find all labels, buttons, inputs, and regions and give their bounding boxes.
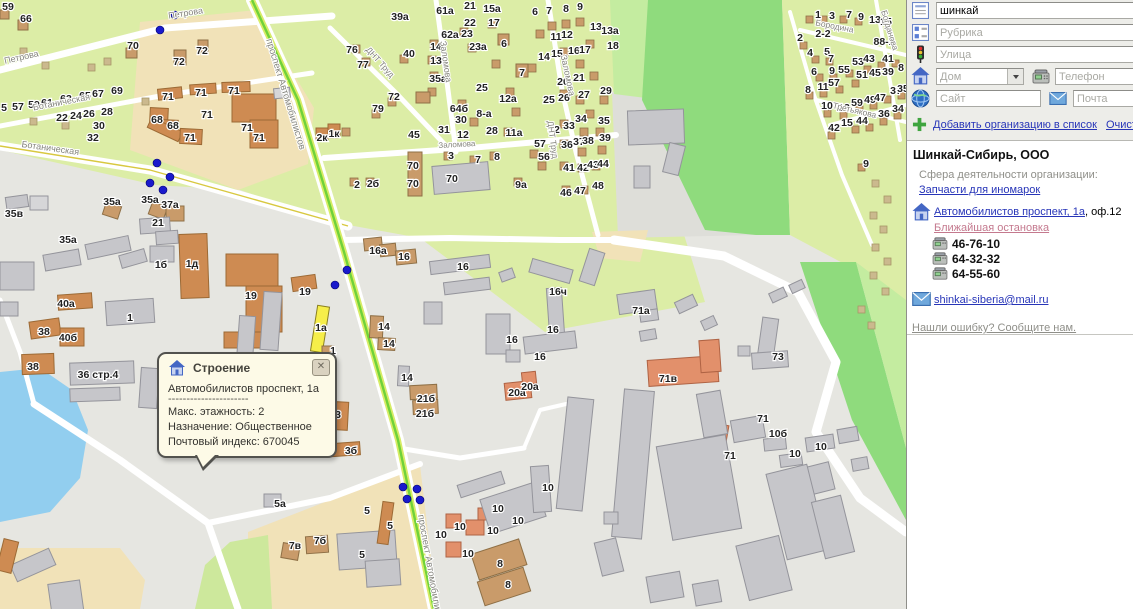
rubric-input[interactable] (936, 24, 1133, 41)
search-sidebar: Дом Добавить организацию в список Очисти… (906, 0, 1133, 609)
building-number-label: 9 (863, 158, 869, 170)
address-link[interactable]: Автомобилистов проспект, 1а (934, 206, 1085, 218)
address-office-suffix: , оф.12 (1085, 206, 1122, 218)
building-number-label: 71 (757, 413, 769, 425)
building-number-label: 35а (103, 196, 121, 208)
building-number-label: 21 (464, 0, 476, 12)
building-number-label: 10 (789, 448, 801, 460)
report-error-link[interactable]: Нашли ошибку? Сообщите нам. (912, 322, 1076, 334)
map-cottage (590, 72, 598, 80)
building-number-label: 30 (455, 114, 467, 126)
map-tree (858, 306, 865, 313)
building-number-label: 14 (383, 338, 395, 350)
building-number-label: 12а (499, 93, 517, 105)
building-number-label: 56 (538, 151, 550, 163)
site-input[interactable] (936, 90, 1041, 107)
popup-title: Строение (193, 361, 250, 375)
firm-icon (912, 2, 929, 22)
building-number-label: 39 (599, 132, 611, 144)
building-number-label: 48 (592, 180, 604, 192)
building-number-label: 13 (590, 21, 602, 33)
building-number-label: 5 (387, 520, 393, 532)
building-number-label: 59 (2, 1, 14, 13)
building-number-label: 2 (354, 179, 360, 191)
organization-card: Шинкай-Сибирь, ООО Сфера деятельности ор… (907, 140, 1133, 609)
building-number-label: 7в (289, 540, 302, 552)
building-number-label: 9 (577, 1, 583, 13)
building-number-label: 9а (515, 179, 527, 191)
map-cottage (578, 148, 586, 156)
building-number-label: 45 (408, 129, 420, 141)
building-number-label: 27 (578, 89, 590, 101)
building-number-label: 18 (607, 40, 619, 52)
building-number-label: 32 (87, 132, 99, 144)
building-number-label: 14 (401, 372, 413, 384)
map-canvas[interactable]: 5966705575961636567692224262830327171717… (0, 0, 906, 609)
map-tree (30, 118, 37, 125)
map-tree (870, 272, 877, 279)
building-number-label: 57 (828, 77, 840, 89)
map-building (466, 520, 484, 535)
building-number-label: 39а (391, 11, 409, 23)
building-number-label: 38 (27, 361, 39, 373)
building-number-label: 14 (538, 51, 550, 63)
building-number-label: 7б (314, 535, 327, 547)
traffic-light-icon (913, 45, 928, 66)
building-number-label: 5 (1, 102, 7, 114)
building-number-label: 71в (659, 373, 678, 385)
building-number-label: 2б (367, 178, 380, 190)
map-tree (42, 62, 49, 69)
phone-filter-icon (1032, 69, 1050, 87)
map-building (446, 542, 461, 557)
building-number-label: 33 (563, 120, 575, 132)
map-building (70, 387, 120, 402)
map-cottage (576, 60, 584, 68)
house-filter-icon (911, 67, 930, 88)
building-number-label: 17 (579, 44, 591, 56)
map-building (738, 346, 750, 356)
building-number-label: 34 (575, 113, 587, 125)
organization-title: Шинкай-Сибирь, ООО (913, 148, 1049, 162)
map-tree (880, 226, 887, 233)
building-number-label: 16 (506, 334, 518, 346)
map-cottage (852, 80, 859, 87)
building-number-label: 2 (797, 32, 803, 44)
popup-close-button[interactable]: ✕ (312, 359, 330, 376)
clear-list-link[interactable]: Очистить (1106, 119, 1133, 131)
building-number-label: 3 (448, 150, 454, 162)
building-number-label: 16ч (549, 286, 567, 298)
building-number-label: 23 (461, 28, 473, 40)
building-number-label: 47 (574, 185, 586, 197)
building-number-label: 68 (151, 114, 163, 126)
building-number-label: 35 (598, 115, 610, 127)
house-select-value: Дом (937, 71, 1007, 83)
map-building (416, 92, 430, 103)
map-building (0, 262, 34, 290)
firm-name-input[interactable] (936, 2, 1133, 19)
building-number-label: 17 (488, 17, 500, 29)
map-building (48, 580, 84, 609)
building-number-label: 22 (56, 112, 68, 124)
map-building (260, 291, 282, 350)
building-number-label: 8 (494, 151, 500, 163)
building-number-label: 35 (897, 83, 906, 95)
map-marker-dot[interactable] (416, 496, 424, 504)
building-number-label: 67 (92, 88, 104, 100)
building-number-label: 28 (486, 125, 498, 137)
map-cottage (562, 20, 570, 28)
map-cottage (576, 18, 584, 26)
building-number-label: 69 (111, 85, 123, 97)
building-number-label: 35в (5, 208, 24, 220)
building-number-label: 5а (274, 498, 286, 510)
phone-icon (932, 252, 948, 268)
map-marker-dot[interactable] (153, 159, 161, 167)
building-number-label: 8-а (476, 108, 491, 120)
building-number-label: 66 (20, 13, 32, 25)
building-number-label: 10 (492, 503, 504, 515)
building-number-label: 70 (446, 173, 458, 185)
building-number-label: 10 (815, 441, 827, 453)
building-number-label: 16 (547, 324, 559, 336)
building-number-label: 72 (173, 56, 185, 68)
mail-filter-icon (1049, 92, 1067, 108)
building-number-label: 77 (357, 59, 369, 71)
add-plus-icon (912, 117, 927, 135)
building-number-label: 36 стр.4 (78, 369, 119, 381)
building-number-label: 64б (450, 103, 469, 115)
building-number-label: 10 (821, 100, 833, 112)
house-icon (168, 360, 186, 376)
map-tree (142, 98, 149, 105)
map-building (365, 559, 401, 587)
building-number-label: 10 (454, 521, 466, 533)
phone-icon (932, 237, 948, 253)
map-building (432, 162, 490, 195)
map-building (699, 339, 721, 372)
building-number-label: 1а (315, 322, 327, 334)
map-road (344, 238, 614, 240)
map-cottage (492, 60, 500, 68)
map-building (156, 230, 179, 245)
building-number-label: 44 (597, 158, 609, 170)
building-number-label: 42 (828, 122, 840, 134)
building-number-label: 61а (436, 5, 454, 17)
map-cottage (536, 30, 544, 38)
building-number-label: 16 (398, 251, 410, 263)
building-number-label: 71 (162, 91, 174, 103)
building-number-label: 11 (817, 81, 828, 93)
map-building (692, 580, 721, 606)
building-number-label: 40а (57, 298, 75, 310)
phone-icon (932, 267, 948, 283)
building-number-label: 43 (863, 53, 875, 65)
building-number-label: 2к (316, 132, 328, 144)
rubric-icon (912, 24, 929, 44)
building-number-label: 21б (417, 393, 436, 405)
popup-postcode: Почтовый индекс: 670045 (168, 436, 326, 448)
building-number-label: 30 (93, 120, 105, 132)
map-cottage (812, 56, 819, 63)
building-number-label: 11а (506, 127, 523, 139)
building-number-label: 25 (543, 94, 555, 106)
app-window: { "popup": { "title": "Строение", "addre… (0, 0, 1133, 609)
building-number-label: 71а (632, 305, 650, 317)
building-number-label: 38 (38, 326, 50, 338)
building-number-label: 70 (407, 160, 419, 172)
map-building (639, 329, 656, 342)
map-tree (882, 288, 889, 295)
building-number-label: 10 (462, 548, 474, 560)
popup-tail (195, 455, 219, 471)
map-building (30, 196, 48, 210)
building-number-label: 25 (476, 82, 488, 94)
map-tree (884, 196, 891, 203)
chevron-down-icon (1007, 69, 1023, 84)
building-number-label: 70 (407, 178, 419, 190)
building-number-label: 40б (59, 332, 78, 344)
building-number-label: 16 (534, 351, 546, 363)
map-tree (884, 258, 891, 265)
map-tree (872, 180, 879, 187)
building-number-label: 13 (430, 55, 442, 67)
map-marker-dot[interactable] (156, 26, 164, 34)
building-number-label: 35а (59, 234, 77, 246)
map-building (627, 109, 684, 145)
map-cottage (600, 96, 608, 104)
map-cottage (586, 110, 594, 118)
house-select[interactable]: Дом (936, 68, 1024, 85)
building-number-label: 1к (328, 128, 340, 140)
map-building (604, 512, 618, 524)
building-number-label: 28 (101, 106, 113, 118)
building-number-label: 10б (769, 428, 788, 440)
building-number-label: 10 (487, 525, 499, 537)
building-number-label: 23а (469, 41, 487, 53)
map-cottage (530, 150, 538, 158)
map-building (646, 571, 684, 603)
building-number-label: 7 (475, 154, 481, 166)
mail-input[interactable] (1073, 90, 1133, 107)
building-number-label: 1б (155, 259, 168, 271)
building-number-label: 19 (245, 290, 257, 302)
building-number-label: 19 (299, 286, 311, 298)
building-number-label: 16а (369, 245, 387, 257)
building-number-label: 40 (403, 48, 415, 60)
building-number-label: 34 (892, 103, 904, 115)
activity-link[interactable]: Запчасти для иномарок (919, 184, 1040, 196)
building-number-label: 36 (561, 139, 573, 151)
building-number-label: 15 (841, 117, 853, 129)
phone-number: 46-76-10 (952, 237, 1000, 251)
building-number-label: 14 (378, 321, 390, 333)
building-number-label: 41 (882, 53, 894, 65)
map-building (232, 94, 276, 122)
building-number-label: 10 (435, 529, 447, 541)
map-tree (870, 212, 877, 219)
building-number-label: 11 (550, 31, 561, 43)
building-number-label: 76 (346, 44, 358, 56)
email-icon (912, 292, 931, 309)
building-number-label: 12 (561, 29, 573, 41)
building-number-label: 72 (196, 45, 208, 57)
building-number-label: 73 (772, 351, 784, 363)
building-number-label: 72 (388, 91, 400, 103)
building-number-label: 8 (505, 579, 511, 591)
map-tree (868, 322, 875, 329)
building-number-label: 62а (441, 29, 459, 41)
building-number-label: 51 (856, 69, 868, 81)
building-number-label: 6 (501, 38, 507, 50)
building-number-label: 29 (600, 85, 612, 97)
map-marker-dot[interactable] (343, 266, 351, 274)
building-number-label: 46 (560, 187, 572, 199)
building-number-label: 16 (457, 261, 469, 273)
building-number-label: 31 (438, 124, 450, 136)
building-number-label: 15а (483, 3, 501, 15)
map-cottage (548, 22, 556, 30)
building-popup: Строение ✕ Автомобилистов проспект, 1а -… (157, 352, 337, 458)
map-marker-dot[interactable] (403, 495, 411, 503)
phone-input[interactable] (1055, 68, 1133, 85)
nearest-stop-link[interactable]: Ближайшая остановка (934, 222, 1049, 234)
map-building (851, 457, 869, 472)
building-number-label: 7 (546, 5, 552, 17)
building-number-label: 35а (141, 194, 159, 206)
building-number-label: 37а (161, 199, 179, 211)
map-marker-dot[interactable] (166, 173, 174, 181)
building-number-label: 71 (241, 122, 253, 134)
map-building (506, 350, 520, 362)
map-cottage (512, 108, 520, 116)
building-number-label: 7 (846, 9, 852, 21)
building-number-label: 4 (807, 47, 813, 59)
building-number-label: 13а (601, 25, 619, 37)
add-organization-link[interactable]: Добавить организацию в список (933, 119, 1097, 131)
map-tree (88, 64, 95, 71)
popup-floors: Макс. этажность: 2 (168, 406, 326, 418)
address-house-icon (912, 203, 931, 224)
globe-icon (911, 89, 930, 111)
building-number-label: 1 (127, 312, 133, 324)
building-number-label: 8 (563, 3, 569, 15)
divider (907, 334, 1133, 335)
map-tree (104, 58, 111, 65)
building-number-label: 24 (70, 110, 82, 122)
map-image: 5966705575961636567692224262830327171717… (0, 0, 906, 609)
building-number-label: 79 (372, 103, 384, 115)
map-building (837, 426, 859, 443)
popup-divider: ---------------------- (168, 395, 326, 403)
building-number-label: 10 (542, 482, 554, 494)
map-marker-dot[interactable] (413, 485, 421, 493)
email-link[interactable]: shinkai-siberia@mail.ru (934, 294, 1048, 306)
building-number-label: 45 (869, 67, 881, 79)
building-number-label: 39 (882, 66, 894, 78)
building-number-label: 41 (563, 162, 575, 174)
map-cottage (528, 64, 536, 72)
building-number-label: 8 (805, 84, 811, 96)
building-number-label: 5 (364, 505, 370, 517)
building-number-label: 55 (838, 64, 850, 76)
building-number-label: 38 (582, 135, 594, 147)
building-number-label: 57 (534, 138, 546, 150)
building-number-label: 71 (201, 109, 213, 121)
building-number-label: 10 (512, 515, 524, 527)
activity-label: Сфера деятельности организации: (919, 169, 1098, 181)
map-marker-dot[interactable] (331, 281, 339, 289)
building-number-label: 7 (519, 67, 525, 79)
building-number-label: 8 (898, 62, 904, 74)
building-number-label: 5 (359, 549, 365, 561)
building-number-label: 8 (497, 558, 503, 570)
map-cottage (342, 128, 350, 136)
map-building (226, 254, 278, 286)
building-number-label: 71 (184, 132, 196, 144)
building-number-label: 68 (167, 120, 179, 132)
building-number-label: 7 (828, 53, 834, 65)
map-building (424, 302, 442, 324)
building-number-label: 26 (83, 108, 95, 120)
building-number-label: 70 (127, 40, 139, 52)
map-cottage (816, 74, 823, 81)
street-input[interactable] (936, 46, 1133, 63)
building-number-label: 71 (228, 85, 240, 97)
phone-number: 64-55-60 (952, 267, 1000, 281)
map-marker-dot[interactable] (159, 186, 167, 194)
popup-address: Автомобилистов проспект, 1а (168, 383, 326, 395)
map-cottage (852, 126, 859, 133)
map-tree (872, 244, 879, 251)
map-building (0, 302, 18, 316)
building-number-label: 57 (12, 101, 24, 113)
building-number-label: 6 (811, 66, 817, 78)
building-number-label: 71 (724, 450, 736, 462)
popup-purpose: Назначение: Общественное (168, 421, 326, 433)
building-number-label: 6 (532, 6, 538, 18)
building-number-label: 71 (253, 132, 265, 144)
building-number-label: 71 (195, 87, 207, 99)
map-cottage (806, 16, 813, 23)
building-number-label: 36 (878, 108, 890, 120)
building-number-label: 21б (416, 408, 435, 420)
map-cottage (538, 162, 546, 170)
map-marker-dot[interactable] (146, 179, 154, 187)
map-building (634, 166, 650, 188)
building-number-label: 9 (829, 65, 835, 77)
building-number-label: 9 (858, 11, 864, 23)
building-number-label: 21 (152, 217, 164, 229)
map-marker-dot[interactable] (399, 483, 407, 491)
building-number-label: 3б (345, 445, 358, 457)
map-cottage (598, 146, 606, 154)
building-number-label: 47 (874, 92, 886, 104)
building-number-label: 1д (186, 258, 199, 270)
building-number-label: 20а (521, 381, 539, 393)
phone-number: 64-32-32 (952, 252, 1000, 266)
